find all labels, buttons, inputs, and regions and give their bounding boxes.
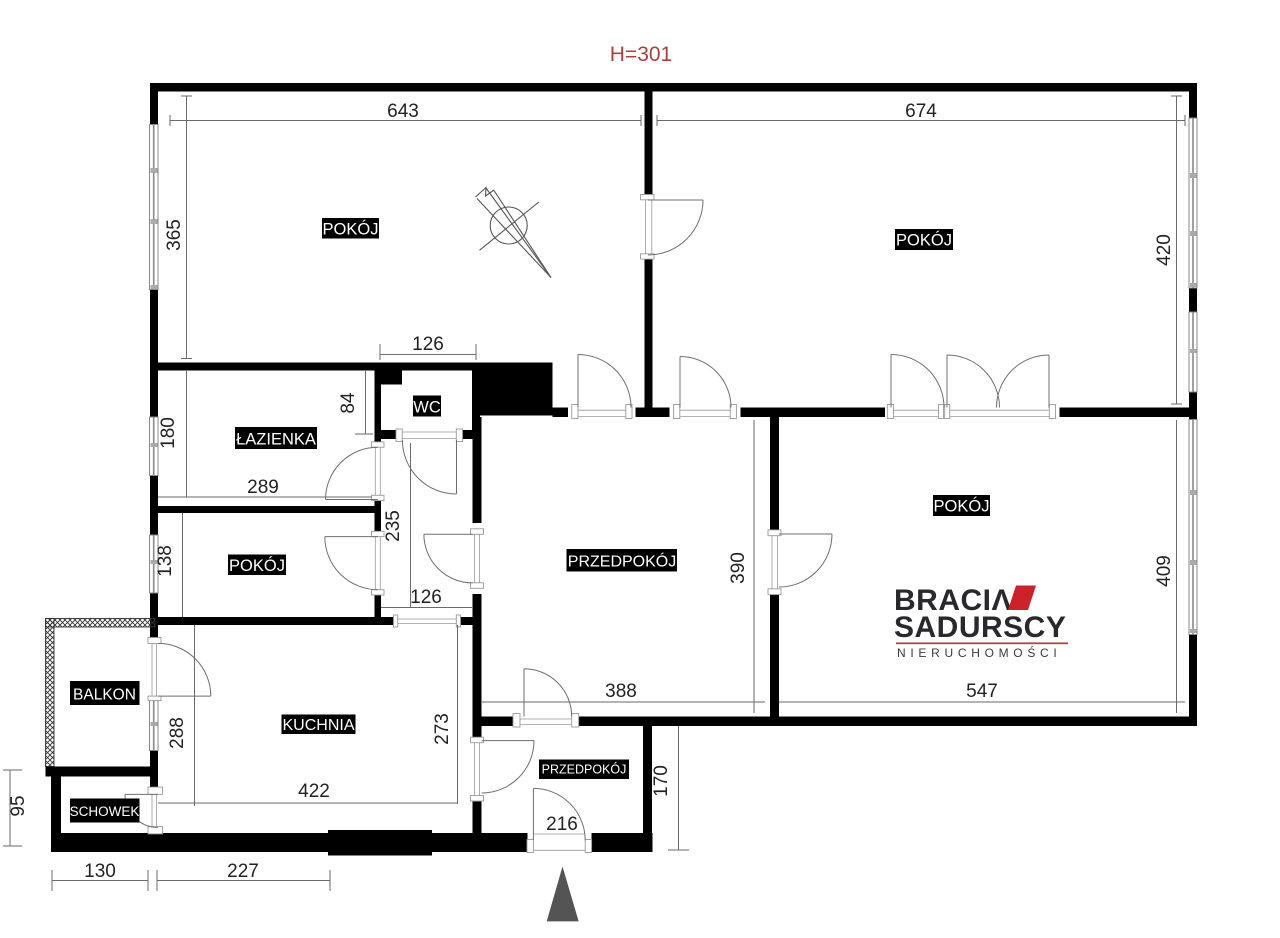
svg-text:POKÓJ: POKÓJ <box>896 231 952 250</box>
svg-text:390: 390 <box>728 552 749 584</box>
svg-text:289: 289 <box>247 477 279 498</box>
svg-text:PRZEDPOKÓJ: PRZEDPOKÓJ <box>568 552 676 571</box>
svg-text:388: 388 <box>605 681 637 702</box>
svg-text:227: 227 <box>227 861 259 882</box>
svg-text:BALKON: BALKON <box>73 687 136 704</box>
svg-text:POKÓJ: POKÓJ <box>229 556 285 575</box>
svg-text:420: 420 <box>1154 234 1175 266</box>
svg-text:POKÓJ: POKÓJ <box>323 220 379 239</box>
svg-text:273: 273 <box>432 713 453 745</box>
svg-text:ŁAZIENKA: ŁAZIENKA <box>236 431 316 449</box>
svg-text:422: 422 <box>298 781 330 802</box>
svg-text:95: 95 <box>8 795 29 816</box>
svg-text:126: 126 <box>412 334 444 355</box>
svg-text:126: 126 <box>410 587 442 608</box>
svg-text:409: 409 <box>1154 555 1175 587</box>
svg-text:235: 235 <box>383 510 404 542</box>
svg-text:SADURSCY: SADURSCY <box>894 611 1066 644</box>
svg-text:547: 547 <box>966 681 998 702</box>
svg-text:NIERUCHOMOŚCI: NIERUCHOMOŚCI <box>897 645 1061 660</box>
svg-text:KUCHNIA: KUCHNIA <box>282 717 354 734</box>
svg-text:H=301: H=301 <box>610 43 672 66</box>
svg-text:138: 138 <box>155 545 176 577</box>
svg-text:WC: WC <box>413 399 441 417</box>
svg-text:180: 180 <box>158 417 179 449</box>
svg-text:674: 674 <box>905 101 937 122</box>
svg-text:PRZEDPOKÓJ: PRZEDPOKÓJ <box>542 762 627 777</box>
svg-text:130: 130 <box>84 861 116 882</box>
svg-text:288: 288 <box>167 717 188 749</box>
svg-text:216: 216 <box>546 814 578 835</box>
svg-text:170: 170 <box>651 765 672 797</box>
svg-text:84: 84 <box>338 392 359 414</box>
svg-text:365: 365 <box>164 219 185 251</box>
svg-text:643: 643 <box>387 101 419 122</box>
svg-text:SCHOWEK: SCHOWEK <box>70 804 140 819</box>
svg-text:POKÓJ: POKÓJ <box>934 497 990 516</box>
